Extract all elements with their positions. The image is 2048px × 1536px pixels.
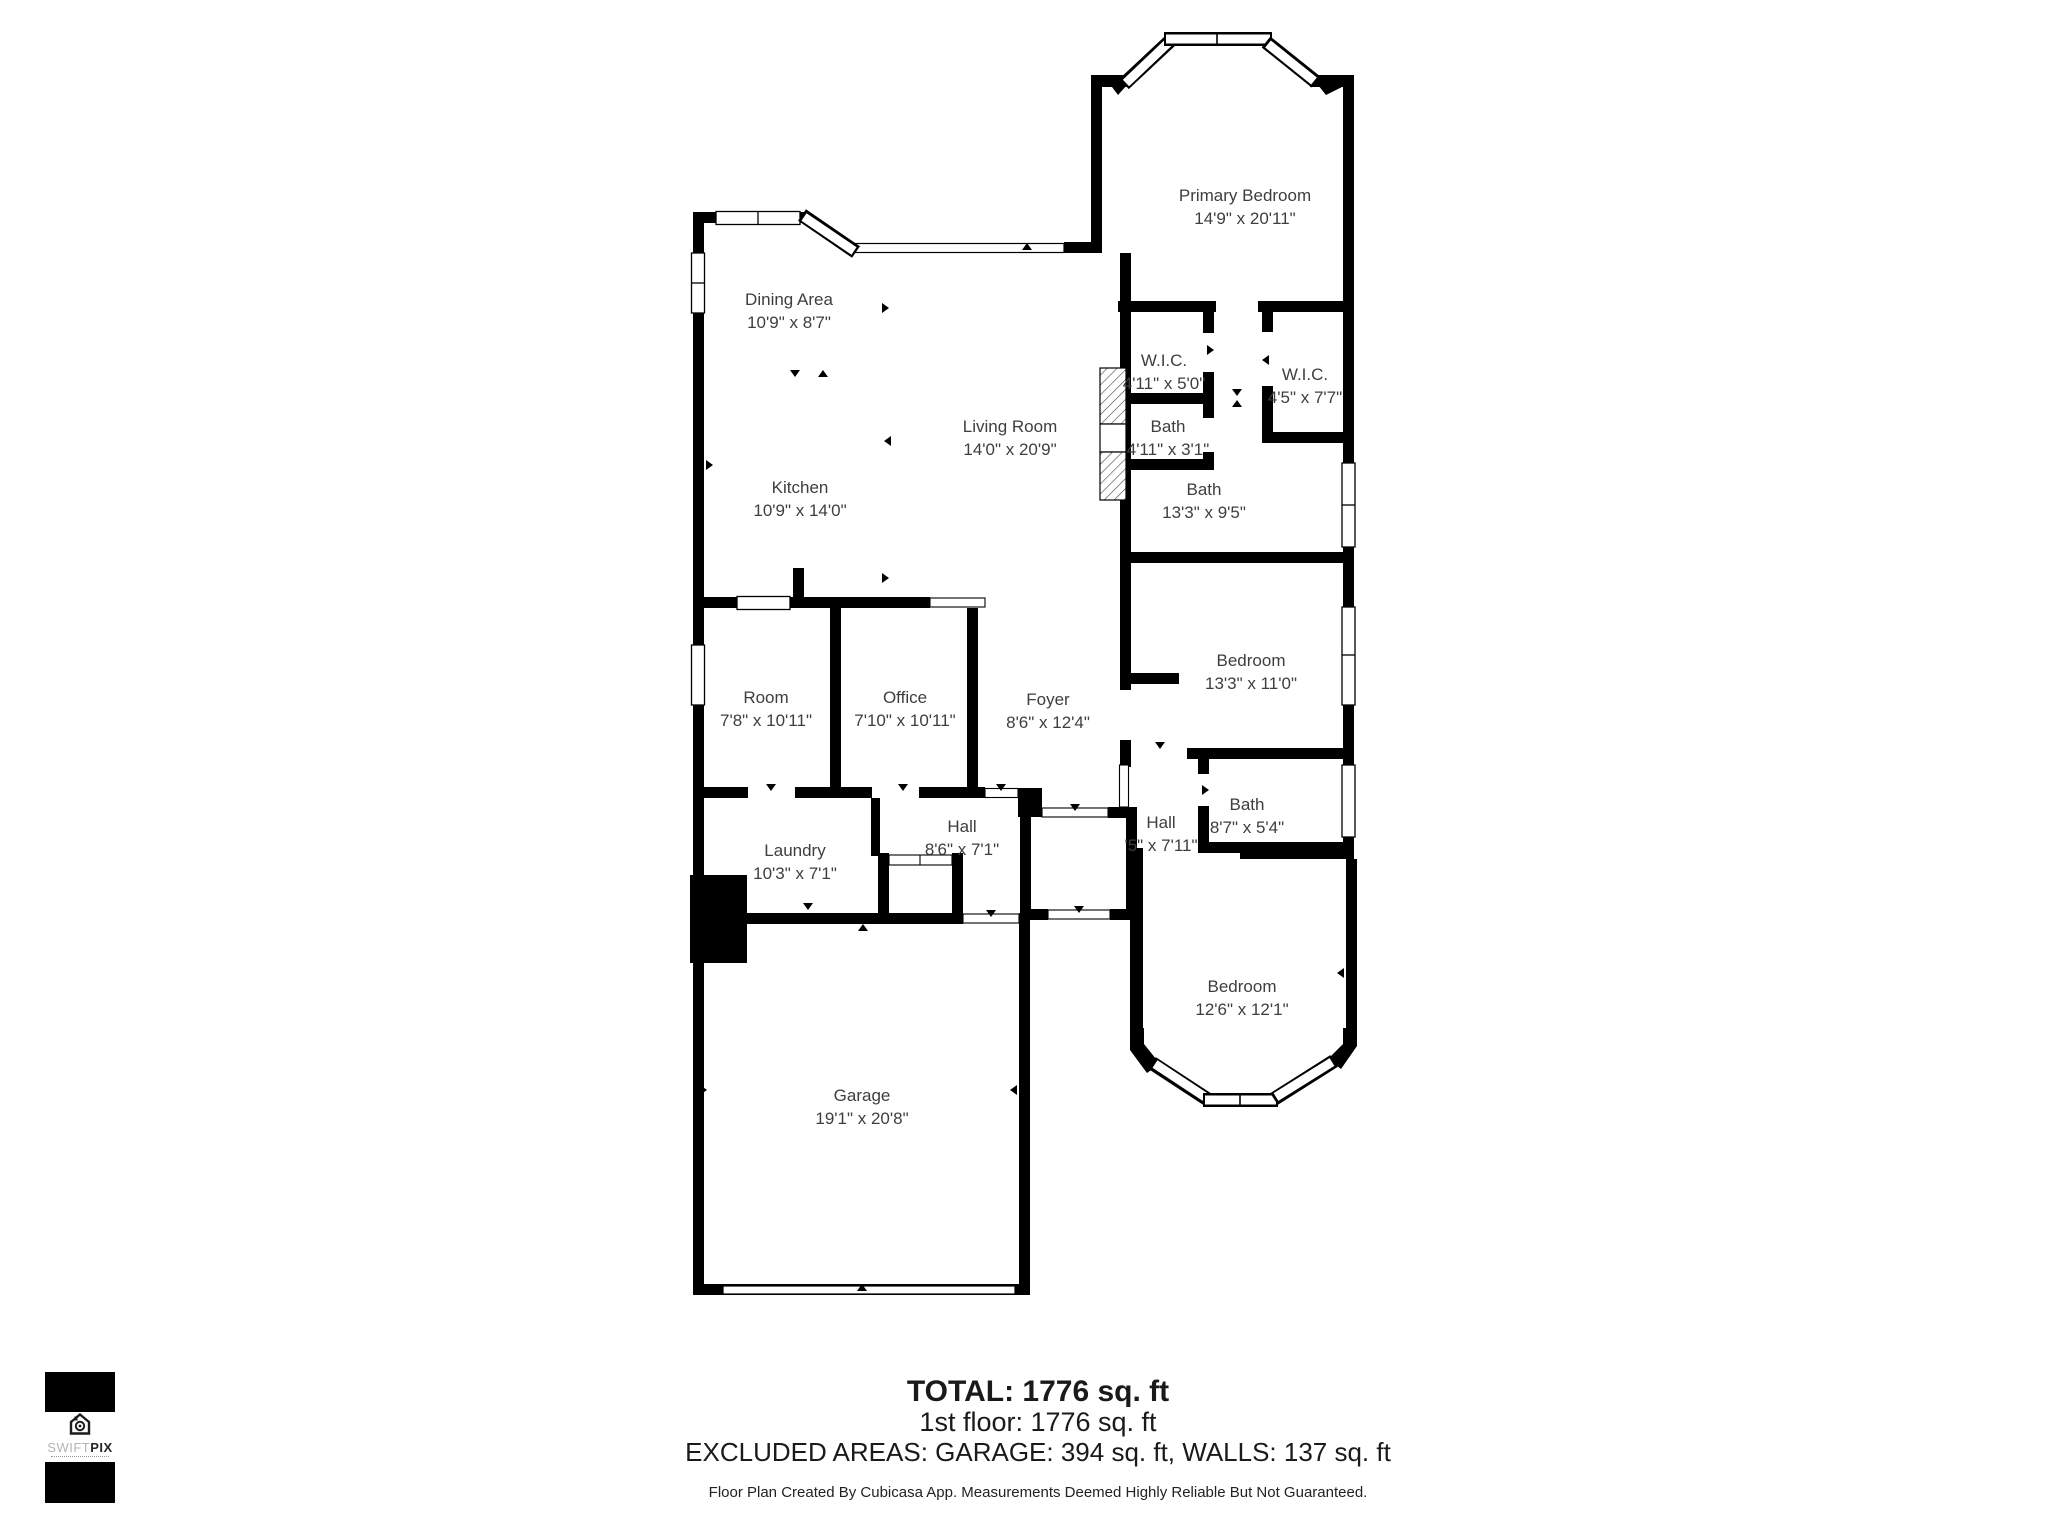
room-label-room: Room 7'8" x 10'11" [720, 686, 812, 732]
room-dims: 10'3" x 7'1" [753, 862, 837, 885]
room-name: Laundry [753, 839, 837, 862]
room-name: Dining Area [745, 288, 833, 311]
room-dims: 12'6" x 12'1" [1195, 998, 1288, 1021]
room-label-laundry: Laundry 10'3" x 7'1" [753, 839, 837, 885]
room-label-wic-2: W.I.C. 4'5" x 7'7" [1268, 363, 1342, 409]
room-name: Office [854, 686, 955, 709]
room-label-bedroom-2: Bedroom 12'6" x 12'1" [1195, 975, 1288, 1021]
bay-window-primary-bedroom [1124, 32, 1316, 84]
bay-window-bedroom [1152, 1061, 1334, 1107]
room-name: W.I.C. [1123, 349, 1206, 372]
room-name: Hall [925, 815, 999, 838]
room-name: Bath [1162, 478, 1246, 501]
room-name: Foyer [1006, 688, 1090, 711]
room-dims: 14'0" x 20'9" [963, 438, 1058, 461]
room-dims: 8'6" x 12'4" [1006, 711, 1090, 734]
room-name: Room [720, 686, 812, 709]
room-dims: 8'6" x 7'1" [925, 838, 999, 861]
room-name: Primary Bedroom [1179, 184, 1311, 207]
room-dims: '5" x 7'11" [1124, 834, 1197, 857]
room-dims: 13'3" x 9'5" [1162, 501, 1246, 524]
room-label-living-room: Living Room 14'0" x 20'9" [963, 415, 1058, 461]
room-label-foyer: Foyer 8'6" x 12'4" [1006, 688, 1090, 734]
room-name: W.I.C. [1268, 363, 1342, 386]
house-camera-icon [69, 1413, 91, 1435]
disclaimer-text: Floor Plan Created By Cubicasa App. Meas… [538, 1483, 1538, 1503]
room-dims: 4'5" x 7'7" [1268, 386, 1342, 409]
room-dims: 10'9" x 8'7" [745, 311, 833, 334]
room-name: Hall [1124, 811, 1197, 834]
room-dims: 4'11" x 3'1" [1127, 438, 1210, 461]
room-label-kitchen: Kitchen 10'9" x 14'0" [753, 476, 846, 522]
room-label-office: Office 7'10" x 10'11" [854, 686, 955, 732]
room-dims: 13'3" x 11'0" [1205, 672, 1297, 695]
room-dims: 4'11" x 5'0" [1123, 372, 1206, 395]
floorplan-page: Primary Bedroom 14'9" x 20'11" Dining Ar… [0, 0, 2048, 1536]
bay-window-dining [802, 215, 856, 252]
room-name: Living Room [963, 415, 1058, 438]
logo-middle: SWIFTPIX [45, 1412, 115, 1460]
room-label-bedroom-1: Bedroom 13'3" x 11'0" [1205, 649, 1297, 695]
logo-tagline-rule [51, 1456, 109, 1460]
room-label-bath-3: Bath 8'7" x 5'4" [1210, 793, 1284, 839]
logo-block-bottom [45, 1462, 115, 1503]
room-label-garage: Garage 19'1" x 20'8" [815, 1084, 908, 1130]
room-dims: 19'1" x 20'8" [815, 1107, 908, 1130]
total-area: TOTAL: 1776 sq. ft [538, 1376, 1538, 1408]
room-label-dining-area: Dining Area 10'9" x 8'7" [745, 288, 833, 334]
room-name: Kitchen [753, 476, 846, 499]
room-name: Bath [1210, 793, 1284, 816]
floorplan-drawing [0, 0, 2048, 1536]
room-name: Garage [815, 1084, 908, 1107]
logo-text-swift: SWIFT [47, 1440, 90, 1455]
room-label-wic-1: W.I.C. 4'11" x 5'0" [1123, 349, 1206, 395]
room-name: Bedroom [1205, 649, 1297, 672]
room-name: Bath [1127, 415, 1210, 438]
room-dims: 7'10" x 10'11" [854, 709, 955, 732]
area-summary: TOTAL: 1776 sq. ft 1st floor: 1776 sq. f… [538, 1376, 1538, 1503]
excluded-areas: EXCLUDED AREAS: GARAGE: 394 sq. ft, WALL… [538, 1437, 1538, 1467]
room-dims: 7'8" x 10'11" [720, 709, 812, 732]
logo-text-pix: PIX [90, 1440, 112, 1455]
first-floor-area: 1st floor: 1776 sq. ft [538, 1408, 1538, 1437]
swiftpix-logo: SWIFTPIX [45, 1372, 115, 1503]
logo-block-top [45, 1372, 115, 1412]
room-label-bath-1: Bath 4'11" x 3'1" [1127, 415, 1210, 461]
room-dims: 10'9" x 14'0" [753, 499, 846, 522]
logo-wordmark: SWIFTPIX [45, 1441, 115, 1454]
room-label-bath-2: Bath 13'3" x 9'5" [1162, 478, 1246, 524]
room-label-primary-bedroom: Primary Bedroom 14'9" x 20'11" [1179, 184, 1311, 230]
room-name: Bedroom [1195, 975, 1288, 998]
room-label-hall-1: Hall '5" x 7'11" [1124, 811, 1197, 857]
room-dims: 8'7" x 5'4" [1210, 816, 1284, 839]
room-label-hall-2: Hall 8'6" x 7'1" [925, 815, 999, 861]
room-dims: 14'9" x 20'11" [1179, 207, 1311, 230]
